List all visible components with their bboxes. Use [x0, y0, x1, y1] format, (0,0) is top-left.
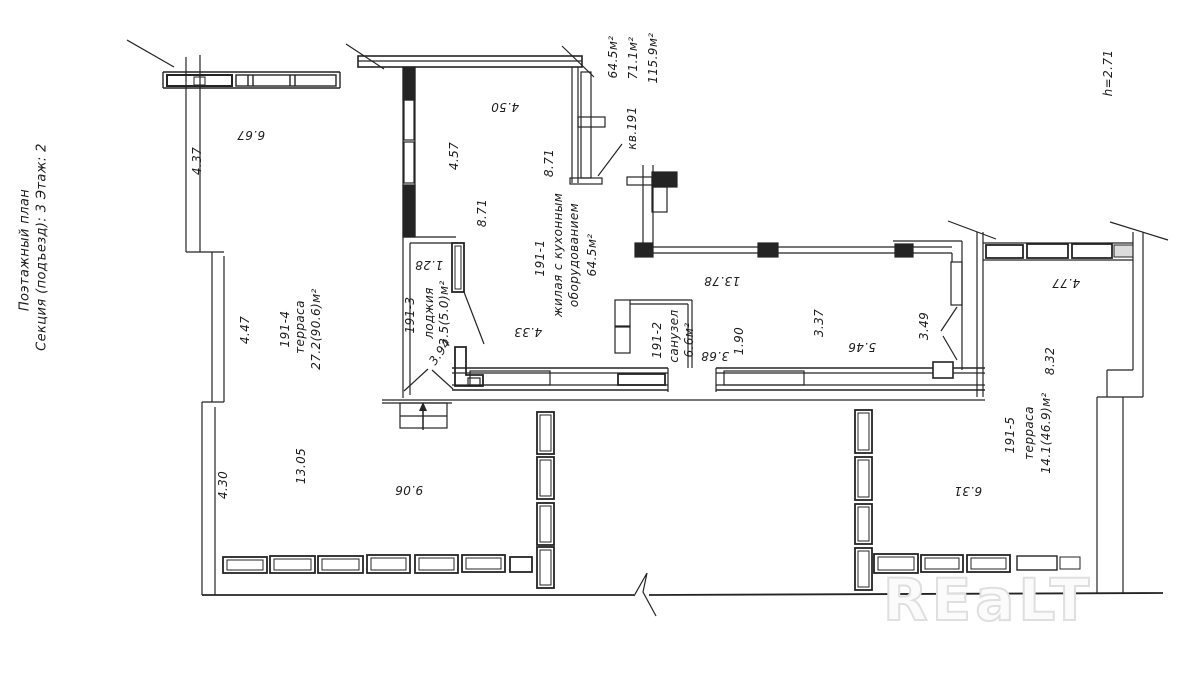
room-terrace-right-id: 191-5 — [1004, 417, 1016, 454]
dim-terrace-right-south: 6.31 — [954, 485, 982, 497]
left-railing-stack — [537, 412, 554, 588]
room-loggia-name: лоджия — [423, 287, 435, 339]
right-outer-wall — [1097, 222, 1168, 594]
dim-living-east-door: 3.49 — [918, 312, 930, 340]
room-living-name-2: оборудованием — [568, 203, 580, 307]
dim-terrace-left-length: 13.05 — [295, 448, 307, 484]
room-terrace-left-name: терраса — [294, 300, 306, 354]
summary-area-living: 64.5м² — [607, 36, 619, 79]
north-wall-main — [346, 44, 594, 77]
right-railing-stack — [855, 410, 872, 590]
dim-loggia-sill: 1.28 — [415, 259, 443, 271]
room-loggia-id: 191-3 — [404, 297, 416, 334]
east-window-upper — [570, 67, 605, 184]
dim-terrace-left-south: 9.06 — [395, 484, 423, 496]
room-living-id: 191-1 — [534, 240, 546, 277]
room-bathroom-name: санузел — [668, 309, 680, 362]
room-terrace-left-area: 27.2(90.6)м² — [310, 288, 322, 369]
dim-hall-length: 13.78 — [704, 275, 740, 287]
dim-living-south-west: 4.33 — [514, 326, 542, 338]
dim-living-east-upper: 3.37 — [813, 309, 825, 337]
room-loggia-area: 3.5(5.0)м² — [438, 280, 450, 345]
dim-living-west-upper: 4.57 — [448, 142, 460, 170]
dim-terrace-left-width: 4.47 — [239, 316, 251, 344]
plan-title: Поэтажный план — [19, 189, 32, 311]
room-bathroom-id: 191-2 — [651, 322, 663, 359]
realt-watermark: REaLT — [883, 566, 1093, 634]
apartment-number: кв.191 — [626, 106, 638, 149]
dim-terrace-right-top: 4.77 — [1052, 277, 1080, 289]
dim-living-west-lower: 8.71 — [476, 199, 488, 227]
entry-partition — [598, 144, 677, 257]
dim-terrace-right-east: 8.32 — [1044, 347, 1056, 375]
dim-living-top-width: 4.50 — [491, 101, 519, 113]
room-bathroom-area: 6.6м² — [683, 323, 695, 358]
room-terrace-right-area: 14.1(46.9)м² — [1040, 392, 1052, 473]
floor-plan: Поэтажный план Секция (подъезд): 3 Этаж:… — [0, 0, 1178, 681]
ceiling-height: h=2.71 — [1102, 50, 1114, 97]
terrace5-north-railing — [983, 243, 1133, 260]
summary-area-total: 115.9м² — [647, 32, 659, 83]
room-living-area: 64.5м² — [586, 234, 598, 277]
dim-terrace-left-lower-width: 4.30 — [217, 471, 229, 499]
left-outer-wall — [127, 40, 224, 595]
summary-area-apartment: 71.1м² — [627, 37, 639, 80]
room-living-name-1: жилая с кухонным — [552, 193, 564, 318]
entrance-stairs — [400, 402, 447, 430]
dim-bath-width: 1.90 — [733, 327, 745, 355]
dim-top-left-length: 6.67 — [237, 129, 265, 141]
south-wall — [382, 362, 985, 403]
room-terrace-left-id: 191-4 — [279, 311, 291, 348]
dim-living-south-east: 5.46 — [848, 341, 876, 353]
left-bottom-railing — [223, 555, 532, 573]
plan-section: Секция (подъезд): 3 Этаж: 2 — [36, 143, 49, 351]
west-wall-living — [403, 67, 415, 398]
hall-partition — [653, 241, 962, 370]
room-terrace-right-name: терраса — [1023, 406, 1035, 460]
dim-bath-length: 3.68 — [701, 350, 729, 362]
dim-living-mid-height: 8.71 — [543, 149, 555, 177]
north-window-band-left — [163, 72, 340, 88]
dim-top-left-width: 4.37 — [191, 147, 203, 175]
